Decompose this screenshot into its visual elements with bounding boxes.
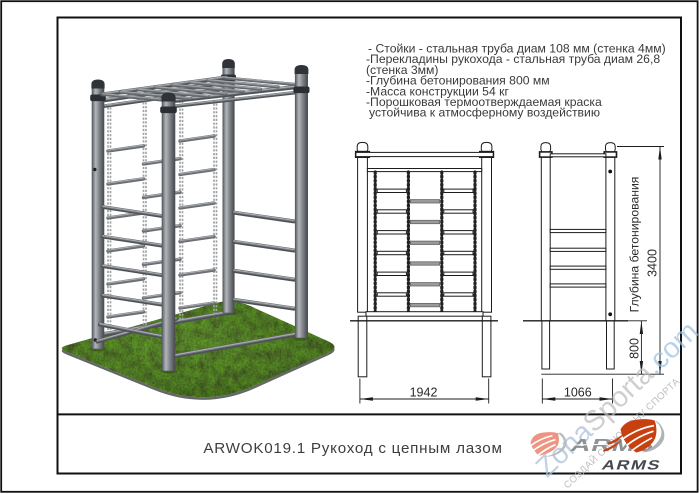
svg-text:3400: 3400 — [646, 249, 660, 277]
svg-text:Глубина бетонирования: Глубина бетонирования — [628, 177, 642, 313]
svg-text:ARWOK019.1 Рукоход с цепным ла: ARWOK019.1 Рукоход с цепным лазом — [203, 440, 502, 457]
svg-text:устойчива к атмосферному возде: устойчива к атмосферному воздействию — [369, 106, 600, 120]
svg-text:ARMS: ARMS — [600, 458, 663, 473]
svg-text:1066: 1066 — [564, 385, 592, 399]
svg-text:1942: 1942 — [410, 385, 438, 399]
